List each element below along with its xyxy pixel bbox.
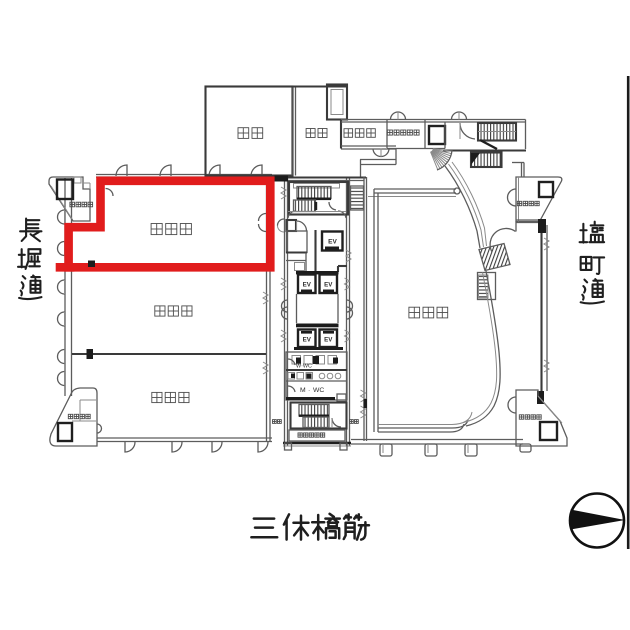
- svg-text:EV: EV: [303, 337, 312, 344]
- svg-text:EV: EV: [328, 239, 337, 246]
- svg-text:M: M: [300, 387, 306, 394]
- svg-text:·: ·: [308, 387, 310, 394]
- svg-text:W·WC: W·WC: [296, 364, 312, 370]
- svg-text:EV: EV: [324, 337, 333, 344]
- svg-text:WC: WC: [313, 387, 324, 394]
- svg-text:EV: EV: [303, 282, 312, 289]
- svg-text:EV: EV: [324, 282, 333, 289]
